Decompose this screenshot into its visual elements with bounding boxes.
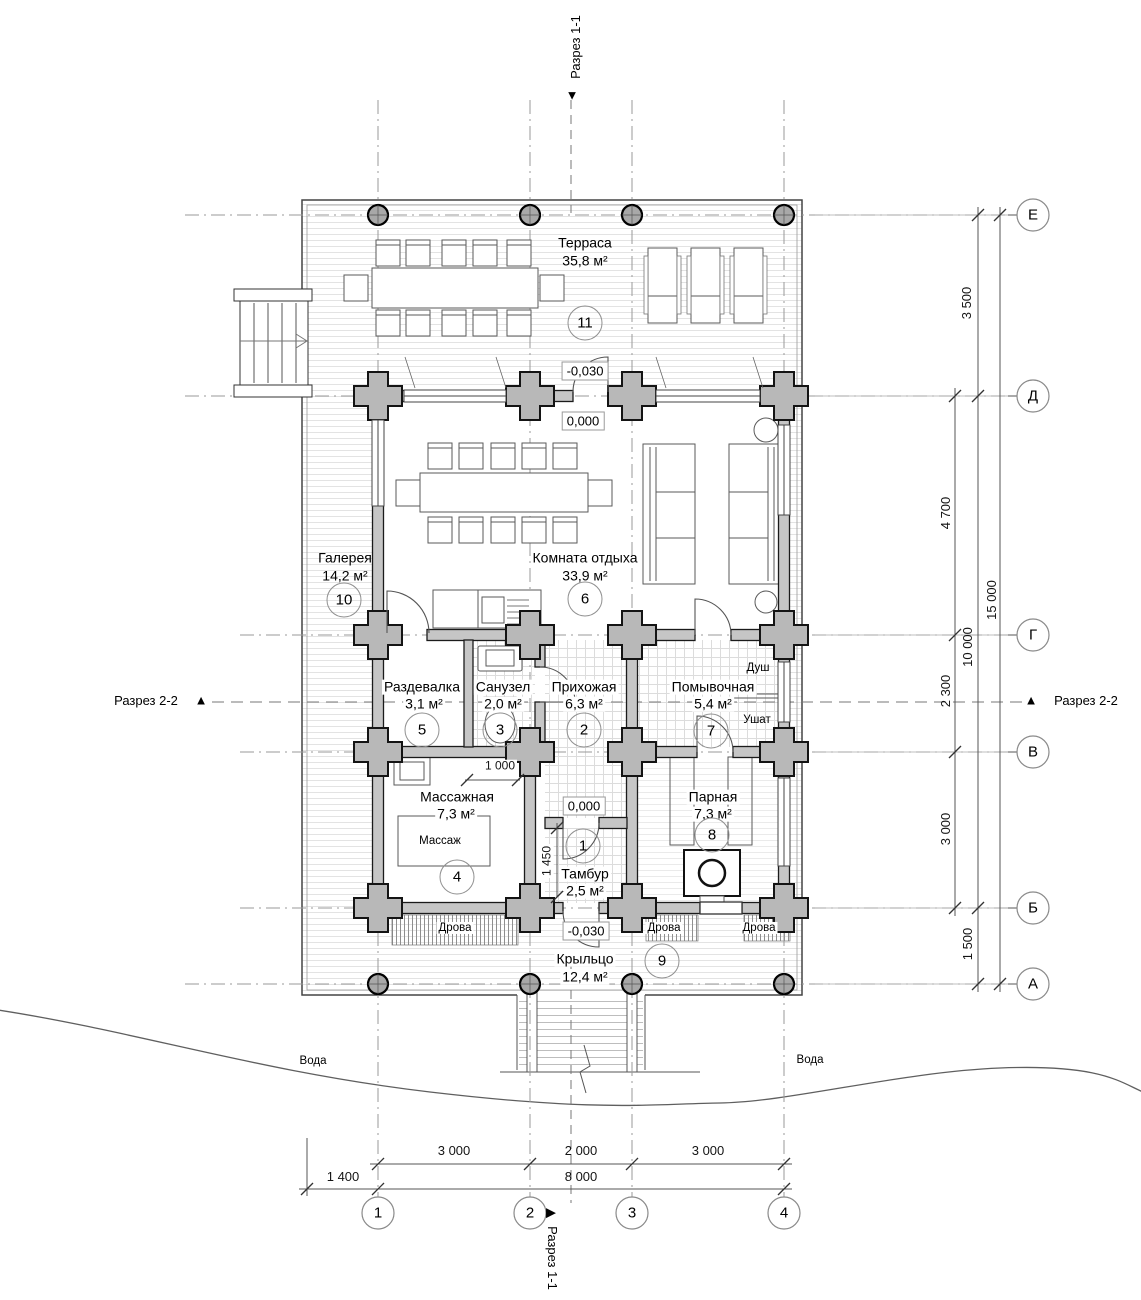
room-badge-11: 11 [568,306,603,341]
room-name-vestibule: Тамбур [559,867,611,882]
room-area-washroom: 5,4 м² [692,697,734,712]
axis-bubble-a: А [1028,976,1038,993]
label-tub: Ушат [743,714,770,726]
room-name-terrace: Терраса [558,236,612,251]
room-name-lounge: Комната отдыха [533,551,638,566]
terrace-stairs [234,289,312,397]
section-label-2-2-right: Разрез 2-2 [1054,694,1118,708]
dim-3000-a: 3 000 [438,1144,471,1158]
axis-bubble-3: 3 [628,1205,636,1222]
dim-4700: 4 700 [939,497,953,530]
axis-bubble-b: Б [1028,900,1038,917]
dim-1500: 1 500 [961,928,975,961]
section-label-2-2-left: Разрез 2-2 [114,694,178,708]
room-area-vestibule: 2,5 м² [564,884,606,899]
level-mark-terrace: -0,030 [562,362,609,381]
room-area-hall: 6,3 м² [563,697,605,712]
section-arrow-up-right-icon: ▲ [1025,694,1038,707]
room-area-massage: 7,3 м² [435,807,477,822]
dim-10000: 10 000 [961,627,975,667]
room-badge-8: 8 [695,818,730,853]
floor-plan: Терраса 35,8 м² Комната отдыха 33,9 м² Г… [0,0,1141,1300]
dim-15000: 15 000 [985,580,999,620]
axis-bubble-4: 4 [780,1205,788,1222]
room-name-porch: Крыльцо [554,952,615,967]
axis-bubble-2: 2 [526,1205,534,1222]
room-badge-3: 3 [483,713,518,748]
room-area-terrace: 35,8 м² [562,254,607,269]
axis-bubble-e: Е [1028,207,1038,224]
room-name-washroom: Помывочная [670,680,757,695]
room-name-dressing: Раздевалка [382,680,462,695]
section-label-1-1-bottom: Разрез 1-1 [545,1226,559,1290]
room-area-porch: 12,4 м² [560,970,609,985]
dim-1450: 1 450 [541,844,554,878]
room-area-dressing: 3,1 м² [403,697,445,712]
room-badge-7: 7 [694,714,729,749]
level-mark-hall: 0,000 [563,797,606,816]
label-water-right: Вода [797,1054,824,1066]
room-badge-1: 1 [566,829,601,864]
section-arrow-right-icon: ▶ [546,1206,556,1219]
room-badge-4: 4 [440,860,475,895]
room-name-hall: Прихожая [550,680,619,695]
room-badge-6: 6 [568,582,603,617]
room-name-wc: Санузел [474,680,533,695]
label-firewood-1: Дрова [437,922,474,934]
dim-3000-right: 3 000 [939,813,953,846]
axis-bubble-v: В [1028,744,1038,761]
section-arrow-down-icon: ▼ [566,89,579,102]
label-firewood-2: Дрова [646,922,683,934]
label-massage-table: Массаж [419,835,461,847]
room-badge-9: 9 [645,944,680,979]
room-name-gallery: Галерея [318,551,372,566]
axis-bubble-d: Д [1028,388,1038,405]
dim-2000: 2 000 [565,1144,598,1158]
section-arrow-up-left-icon: ▲ [195,694,208,707]
section-label-1-1-top: Разрез 1-1 [569,15,583,79]
room-name-massage: Массажная [418,790,496,805]
room-badge-2: 2 [567,713,602,748]
label-water-left: Вода [300,1055,327,1067]
dim-8000: 8 000 [565,1170,598,1184]
axis-bubble-g: Г [1029,627,1037,644]
dim-3500: 3 500 [960,287,974,320]
room-area-gallery: 14,2 м² [322,569,367,584]
dim-1400: 1 400 [327,1170,360,1184]
room-area-wc: 2,0 м² [482,697,524,712]
axis-bubble-1: 1 [374,1205,382,1222]
label-firewood-3: Дрова [741,922,778,934]
level-mark-porch: -0,030 [563,922,610,941]
label-shower: Душ [746,662,769,674]
room-badge-5: 5 [405,713,440,748]
dim-1000: 1 000 [483,760,517,773]
dim-2300: 2 300 [939,675,953,708]
room-name-sauna: Парная [687,790,740,805]
level-mark-lounge: 0,000 [562,412,605,431]
room-badge-10: 10 [327,583,362,618]
dim-3000-b: 3 000 [692,1144,725,1158]
